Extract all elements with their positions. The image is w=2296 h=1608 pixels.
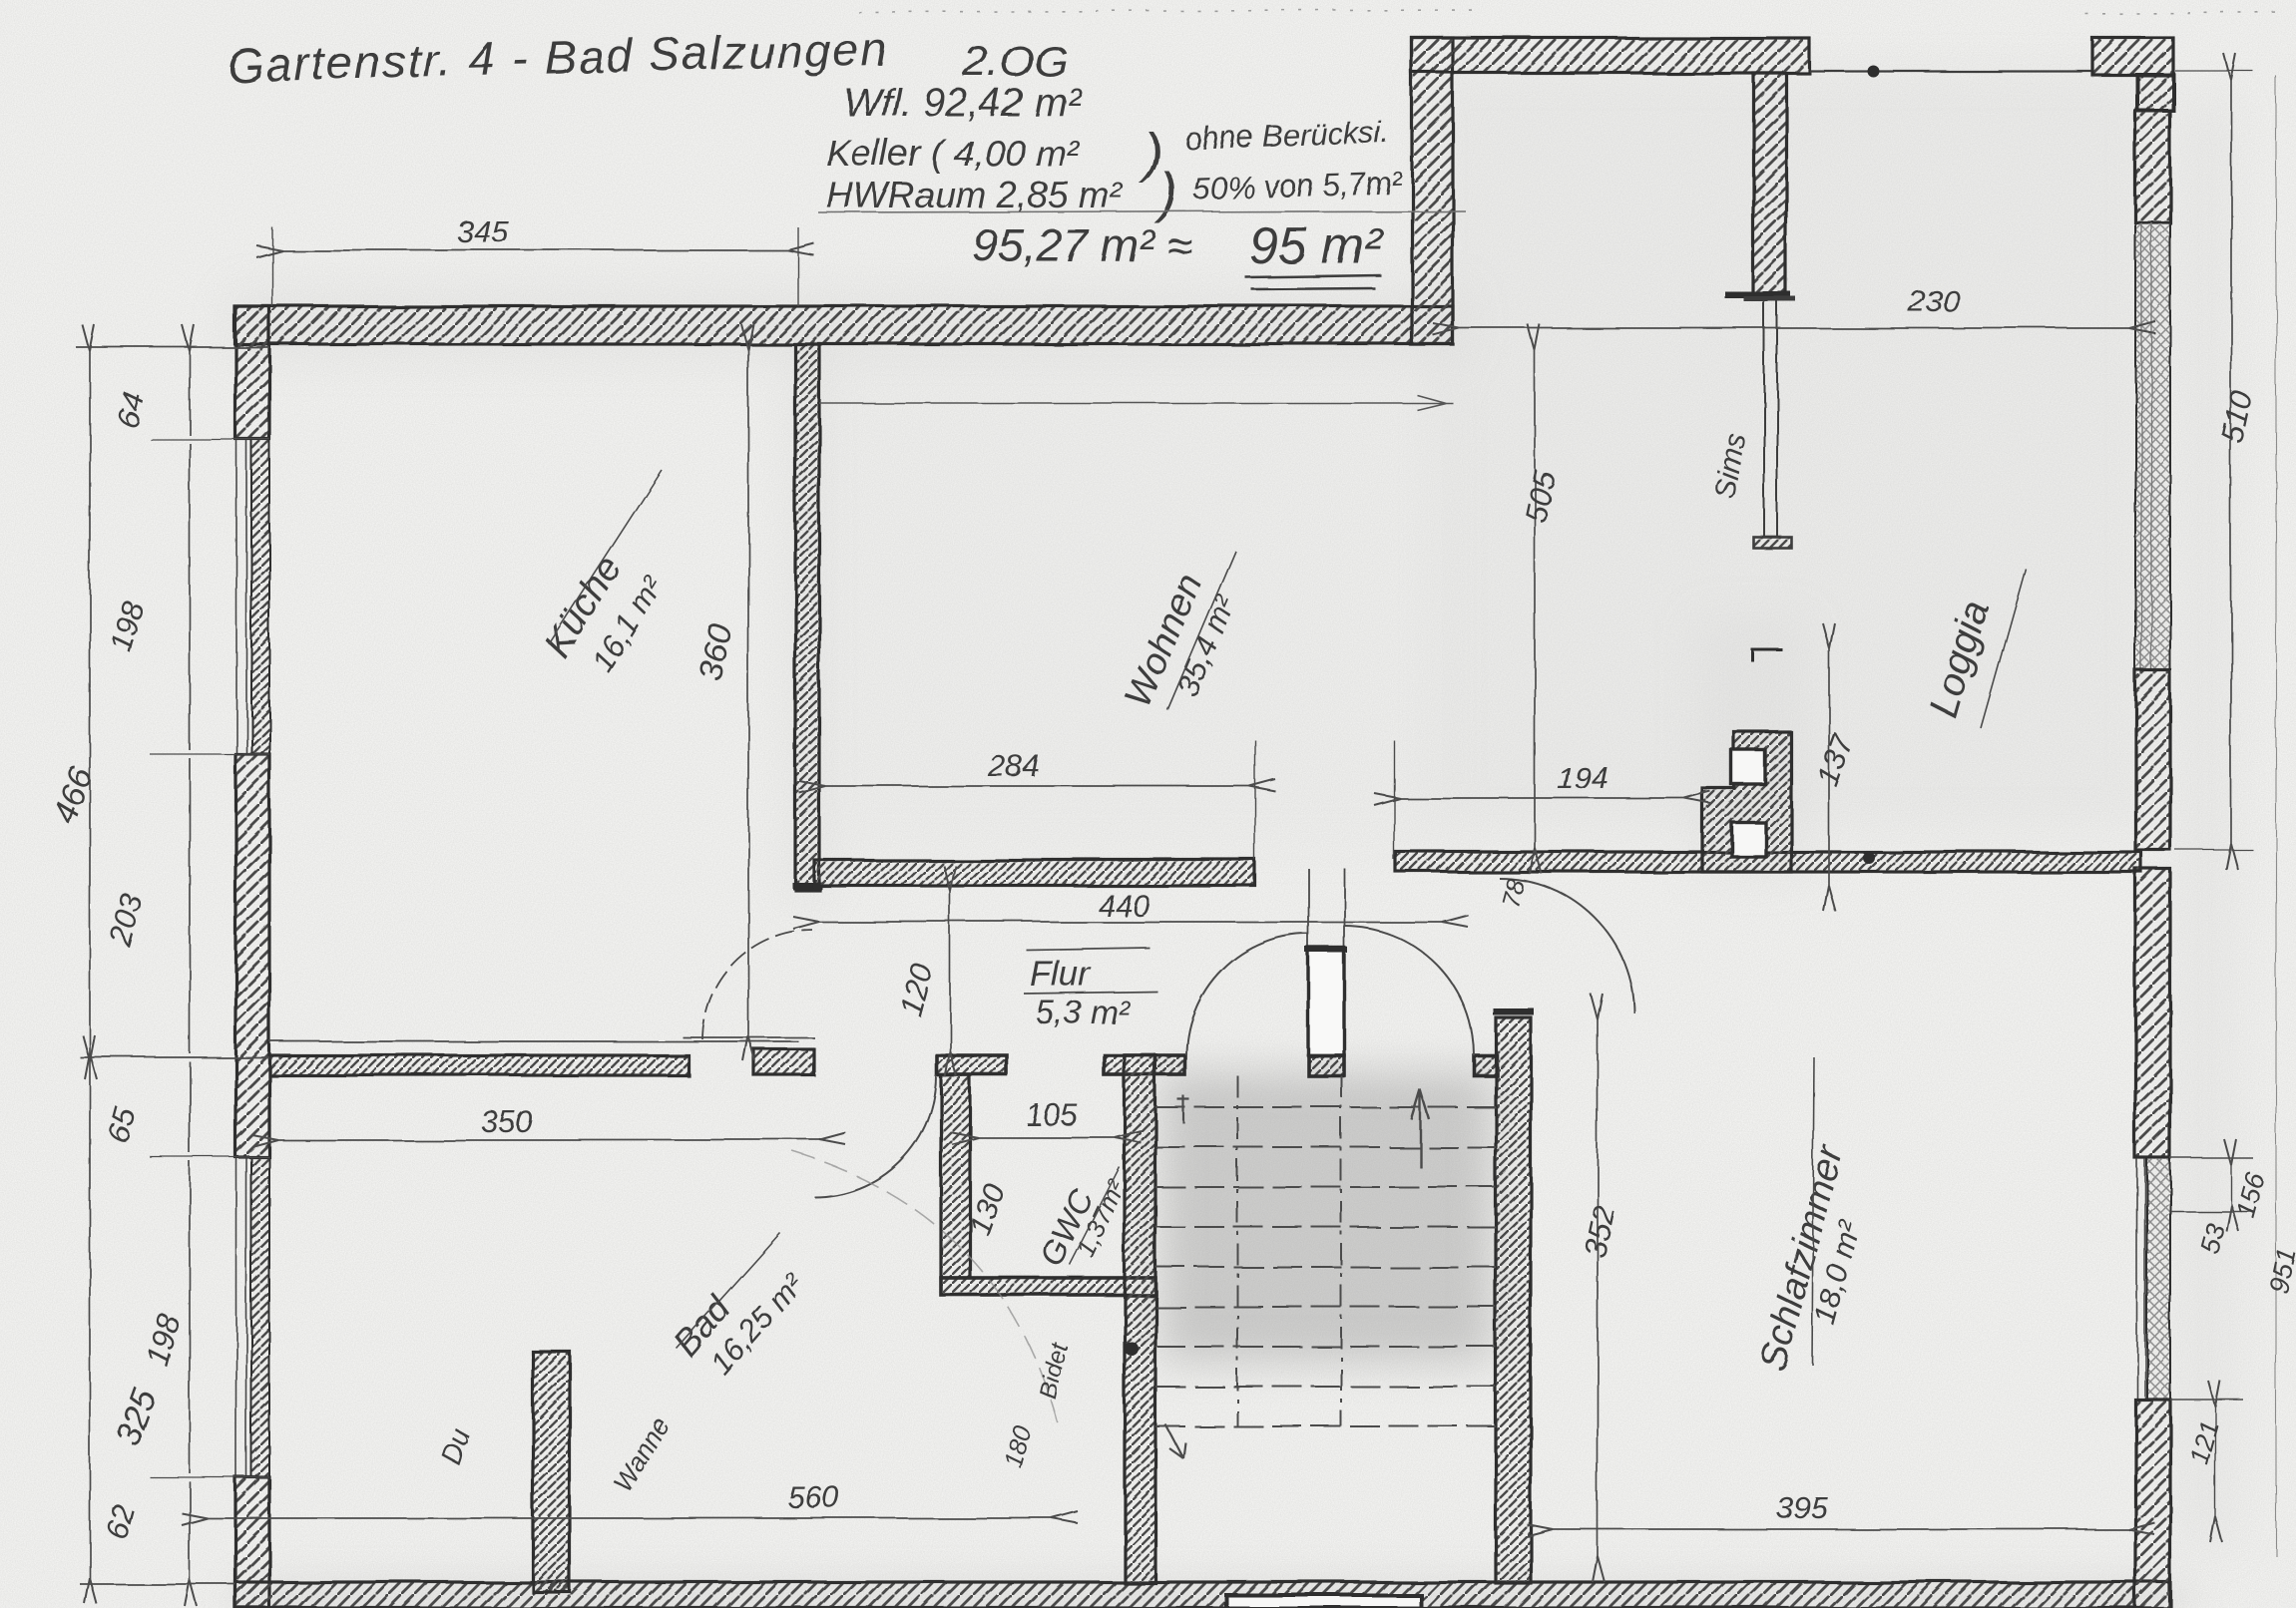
svg-text:95 m²: 95 m² <box>1249 217 1384 275</box>
svg-text:ohne Berücksi.: ohne Berücksi. <box>1184 115 1390 157</box>
svg-text:2.OG: 2.OG <box>962 37 1068 86</box>
svg-text:95,27 m² ≈: 95,27 m² ≈ <box>973 219 1192 271</box>
svg-text:350: 350 <box>481 1104 533 1139</box>
svg-text:Keller ( 4,00 m²: Keller ( 4,00 m² <box>826 133 1081 174</box>
svg-text:Flur: Flur <box>1030 955 1092 994</box>
svg-text:395: 395 <box>1776 1490 1828 1525</box>
svg-text:345: 345 <box>457 214 509 249</box>
svg-text:50% von 5,7m²: 50% von 5,7m² <box>1192 165 1403 206</box>
svg-text:440: 440 <box>1098 888 1149 923</box>
svg-text:Wfl. 92,42 m²: Wfl. 92,42 m² <box>843 81 1083 125</box>
svg-text:HWRaum 2,85 m²: HWRaum 2,85 m² <box>826 175 1124 215</box>
svg-text:5,3 m²: 5,3 m² <box>1036 994 1131 1030</box>
svg-text:560: 560 <box>788 1480 840 1515</box>
svg-text:230: 230 <box>1907 283 1960 318</box>
svg-text:284: 284 <box>987 748 1040 783</box>
svg-text:194: 194 <box>1557 760 1608 795</box>
svg-text:105: 105 <box>1026 1097 1078 1132</box>
